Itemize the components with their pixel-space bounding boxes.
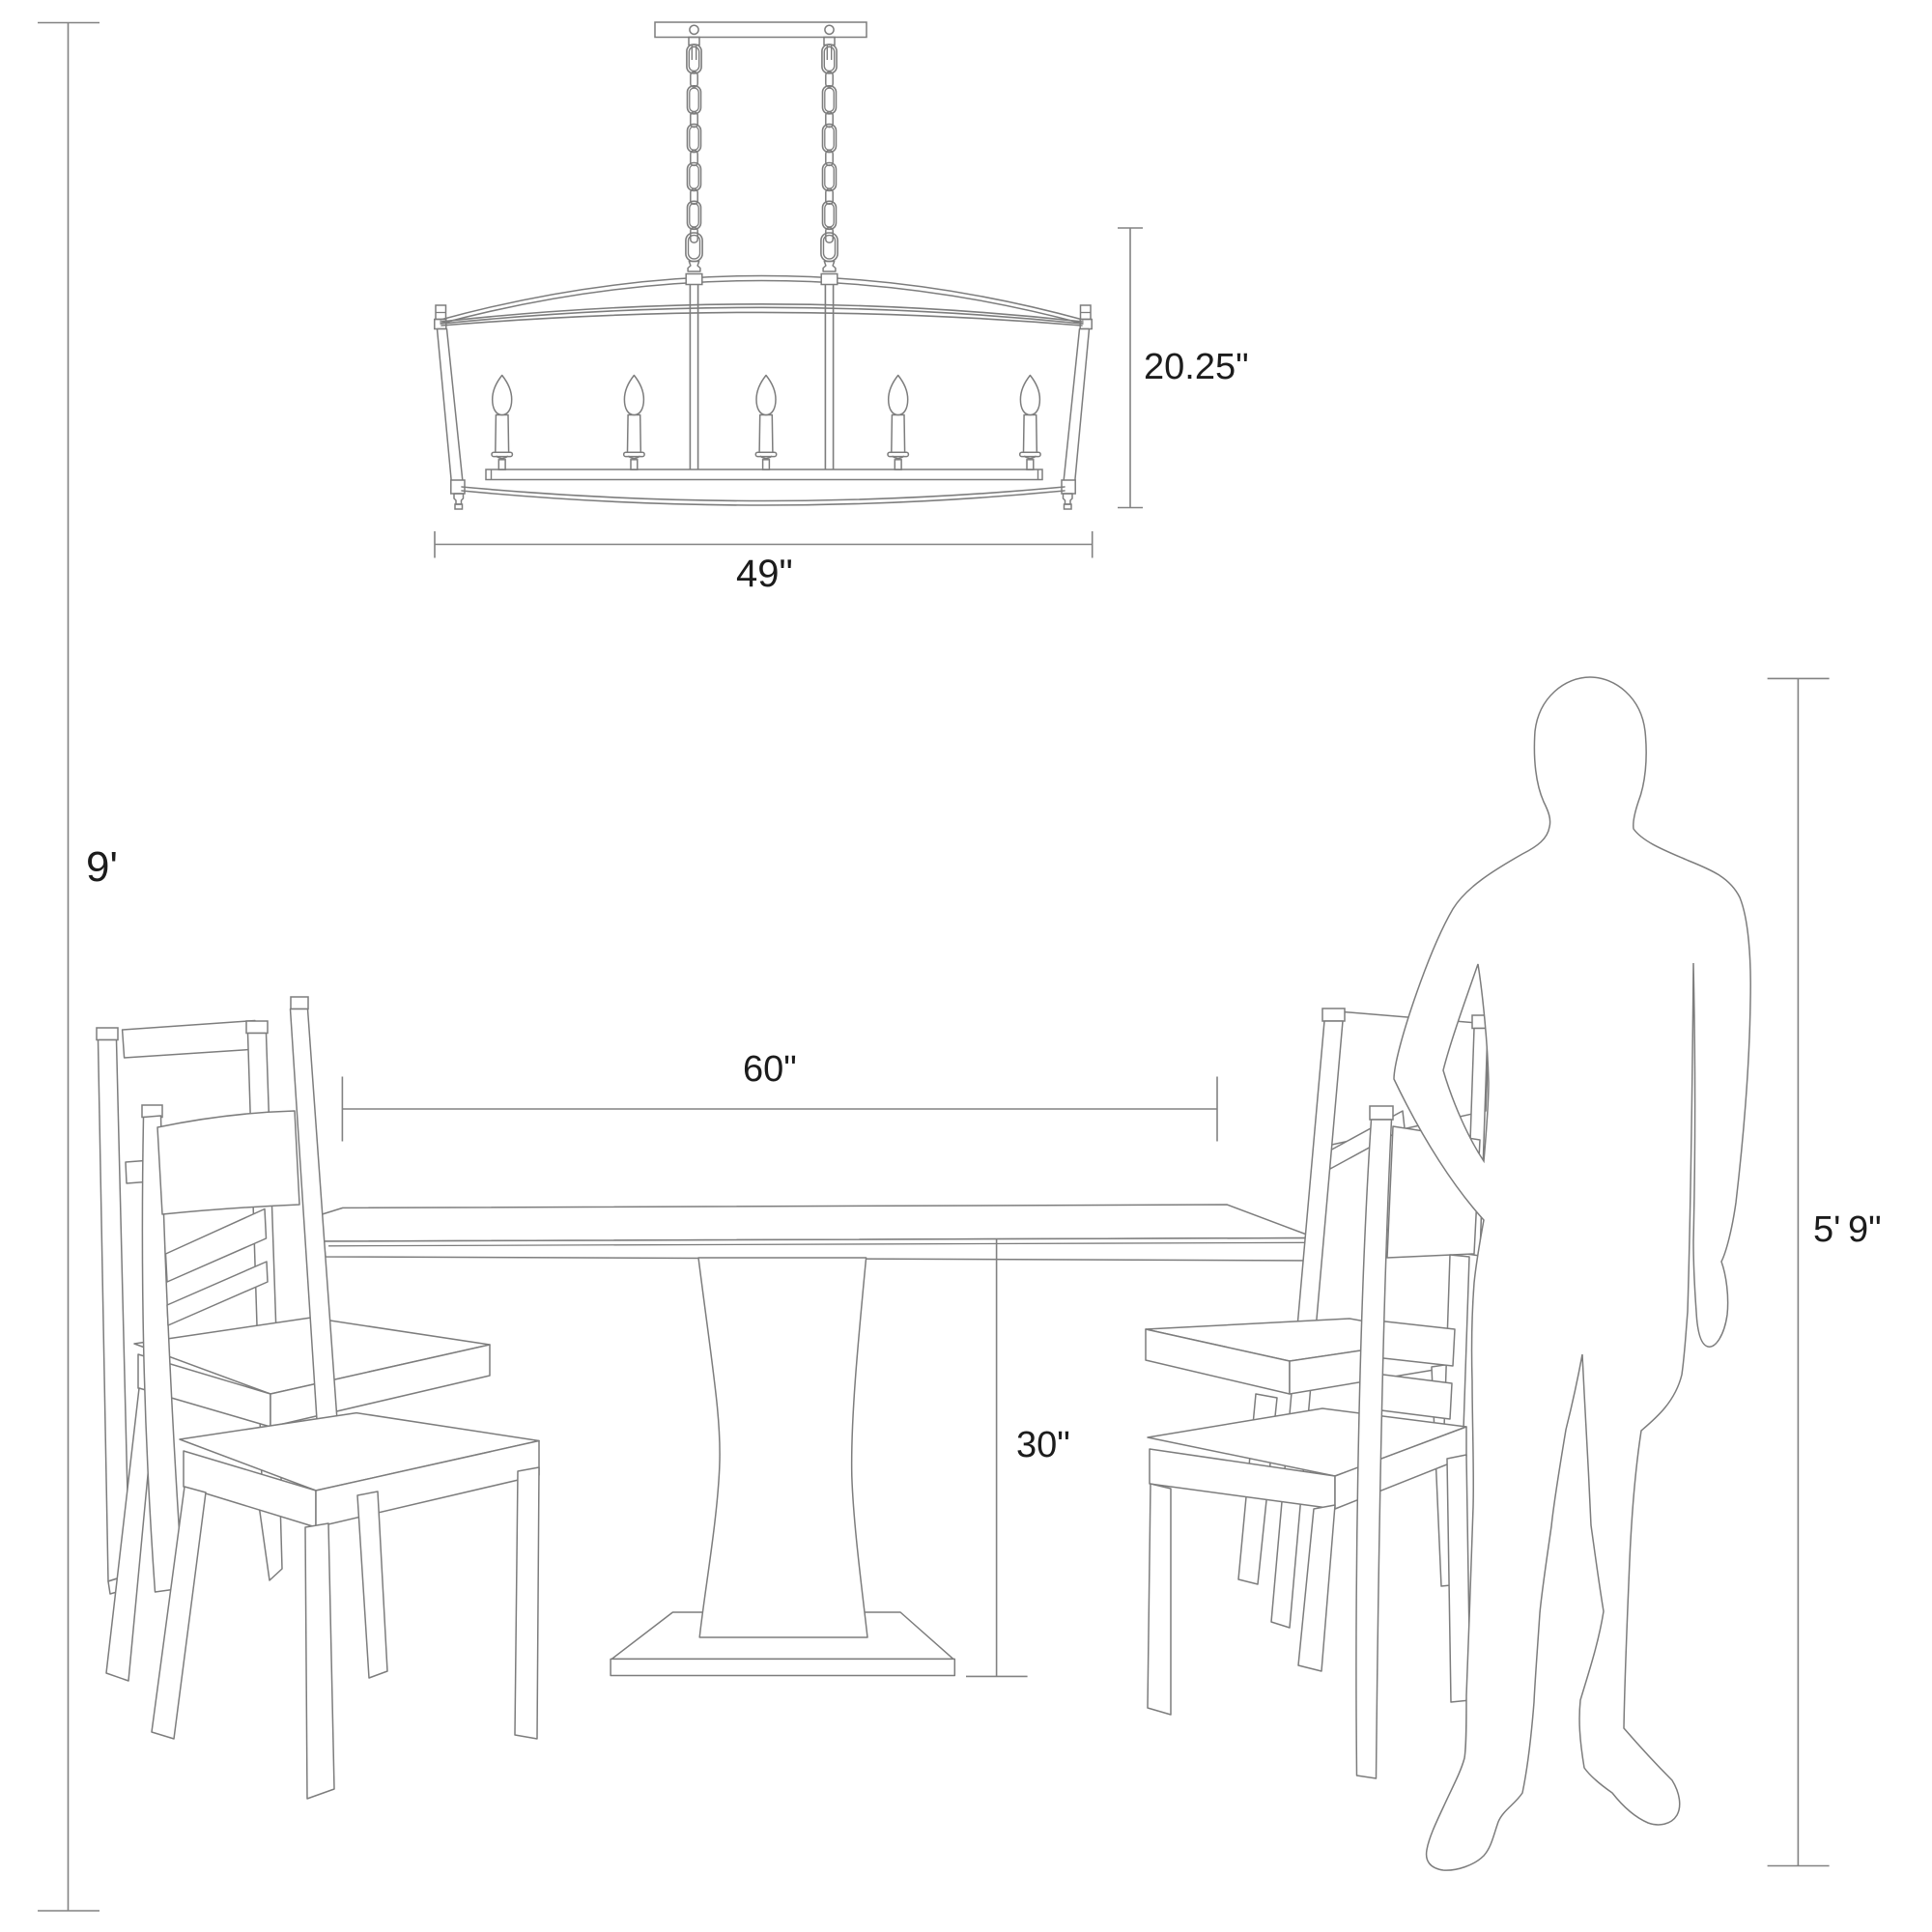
svg-text:60": 60" <box>743 1049 797 1090</box>
svg-text:9': 9' <box>86 843 118 891</box>
svg-text:30": 30" <box>1016 1425 1070 1465</box>
svg-text:5' 9": 5' 9" <box>1813 1209 1882 1250</box>
svg-text:20.25": 20.25" <box>1144 347 1249 387</box>
svg-text:49": 49" <box>736 553 793 595</box>
